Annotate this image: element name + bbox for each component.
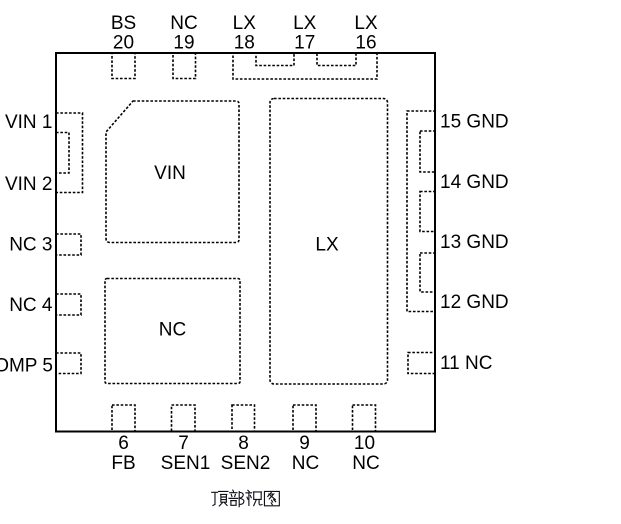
svg-text:NC: NC <box>159 320 186 341</box>
svg-text:NC: NC <box>352 453 379 474</box>
svg-text:14 GND: 14 GND <box>440 172 509 193</box>
svg-text:NC: NC <box>170 13 197 34</box>
svg-text:LX: LX <box>315 235 339 256</box>
svg-text:NC 4: NC 4 <box>9 295 53 316</box>
svg-text:NC 3: NC 3 <box>9 235 52 256</box>
svg-text:7: 7 <box>178 433 189 454</box>
svg-text:FB: FB <box>111 453 135 474</box>
svg-text:SEN1: SEN1 <box>161 453 211 474</box>
svg-text:19: 19 <box>173 33 194 54</box>
svg-text:SEN2: SEN2 <box>221 453 271 474</box>
svg-text:9: 9 <box>299 433 310 454</box>
svg-text:VIN 1: VIN 1 <box>5 112 53 133</box>
svg-text:VIN 2: VIN 2 <box>5 174 53 195</box>
svg-text:15 GND: 15 GND <box>440 112 509 133</box>
svg-text:20: 20 <box>113 33 134 54</box>
svg-text:18: 18 <box>234 33 255 54</box>
svg-text:LX: LX <box>354 13 378 34</box>
svg-text:12 GND: 12 GND <box>440 292 509 313</box>
svg-text:LX: LX <box>233 13 257 34</box>
svg-text:BS: BS <box>111 13 136 34</box>
svg-text:13 GND: 13 GND <box>440 232 509 253</box>
svg-text:6: 6 <box>118 433 129 454</box>
svg-text:LX: LX <box>293 13 317 34</box>
svg-text:10: 10 <box>354 433 375 454</box>
svg-text:VIN: VIN <box>154 163 186 184</box>
svg-text:17: 17 <box>294 33 315 54</box>
svg-text:8: 8 <box>238 433 249 454</box>
svg-text:NC: NC <box>292 453 319 474</box>
svg-text:11 NC: 11 NC <box>440 353 492 374</box>
svg-text:COMP 5: COMP 5 <box>0 356 53 377</box>
svg-text:16: 16 <box>355 33 376 54</box>
